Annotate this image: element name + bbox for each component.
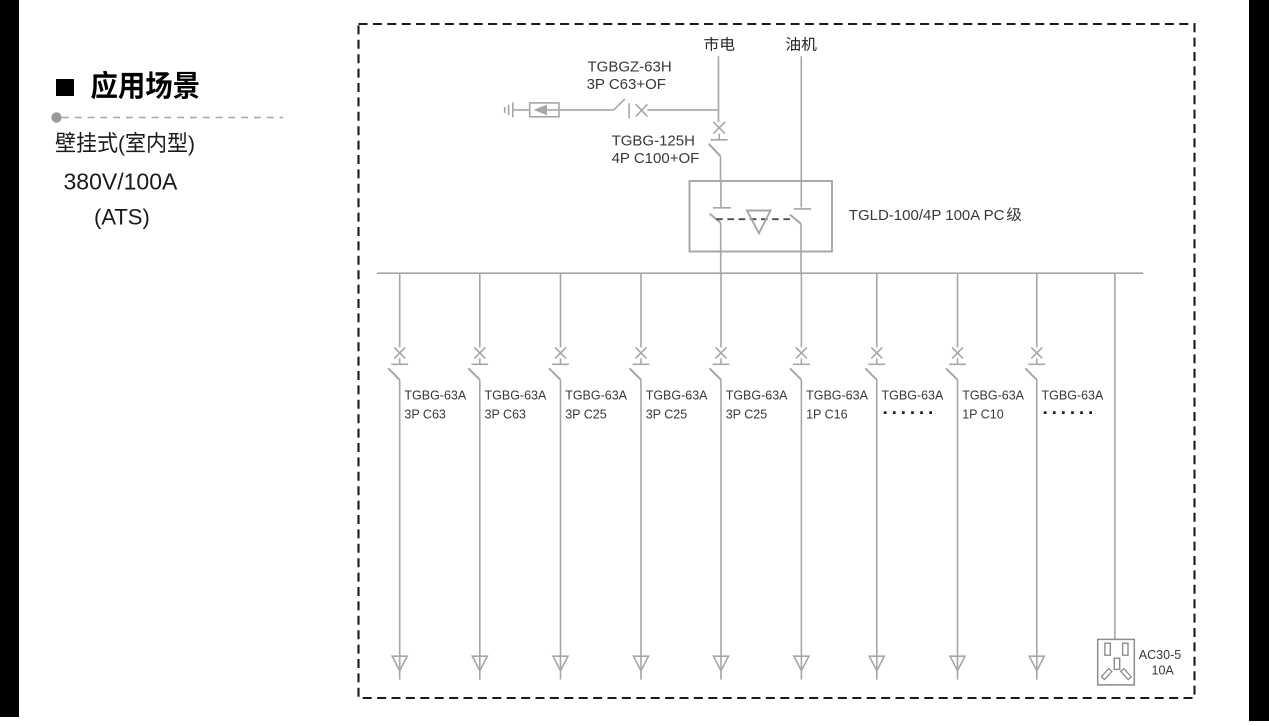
svg-text:3P C25: 3P C25 (646, 407, 688, 421)
svg-text:3P C63: 3P C63 (404, 407, 446, 421)
svg-text:1P C16: 1P C16 (806, 407, 848, 421)
svg-text:(ATS): (ATS) (94, 205, 150, 230)
svg-text:TGBG-63A: TGBG-63A (882, 388, 944, 402)
svg-text:3P C25: 3P C25 (726, 407, 768, 421)
svg-text:TGBG-63A: TGBG-63A (1042, 388, 1104, 402)
svg-text:3P C63: 3P C63 (485, 407, 527, 421)
svg-text:1P C10: 1P C10 (962, 407, 1004, 421)
svg-text:TGBG-63A: TGBG-63A (726, 388, 788, 402)
svg-text:3P C63+OF: 3P C63+OF (587, 76, 666, 93)
svg-text:TGBG-63A: TGBG-63A (646, 388, 708, 402)
svg-text:TGBG-63A: TGBG-63A (806, 388, 868, 402)
svg-text:): ) (188, 133, 195, 156)
svg-text:TGBGZ-63H: TGBGZ-63H (588, 59, 672, 76)
svg-text:(: ( (118, 133, 125, 156)
svg-text:3P C25: 3P C25 (565, 407, 607, 421)
svg-text:10A: 10A (1152, 663, 1175, 677)
svg-text:TGBG-63A: TGBG-63A (404, 388, 466, 402)
svg-text:TGBG-125H: TGBG-125H (612, 133, 695, 150)
svg-text:TGLD-100/4P 100A PC: TGLD-100/4P 100A PC (849, 207, 1005, 224)
svg-text:TGBG-63A: TGBG-63A (962, 388, 1024, 402)
svg-text:TGBG-63A: TGBG-63A (485, 388, 547, 402)
svg-text:AC30-5: AC30-5 (1139, 648, 1181, 662)
svg-text:4P C100+OF: 4P C100+OF (612, 150, 700, 167)
svg-text:380V/100A: 380V/100A (64, 169, 178, 195)
svg-text:TGBG-63A: TGBG-63A (565, 388, 627, 402)
